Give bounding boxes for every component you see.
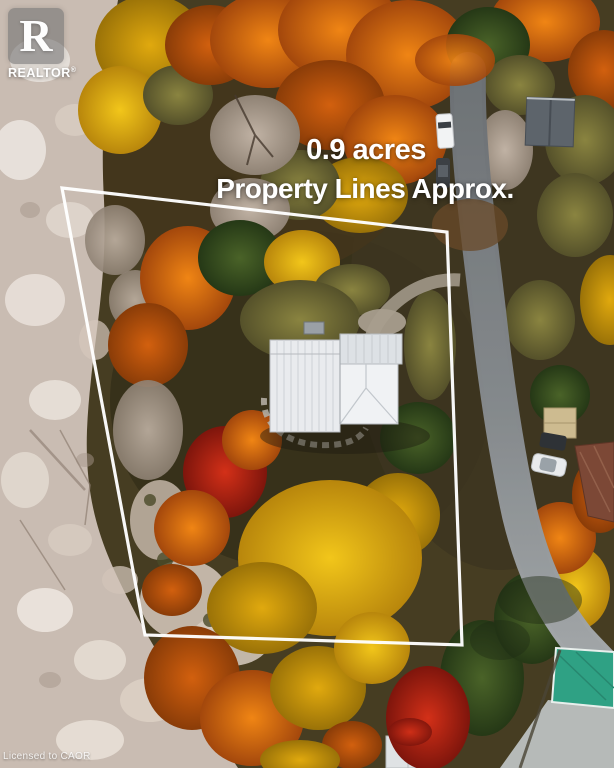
aerial-photo-canvas [0,0,614,768]
realtor-logo: R REALTOR® [8,8,78,80]
license-watermark: Licensed to CAOR [3,751,91,762]
realtor-r-glyph: R [19,13,52,59]
acreage-label: 0.9 acres [306,134,426,167]
registered-mark: ® [71,67,77,74]
aerial-photo: 0.9 acres Property Lines Approx. R REALT… [0,0,614,768]
realtor-logo-icon: R [8,8,64,64]
red-maple-tree [386,666,470,768]
property-lines-disclaimer: Property Lines Approx. [216,173,514,205]
grey-shed [525,97,575,147]
red-maple-overhang [388,718,432,746]
parked-van [436,113,454,148]
realtor-wordmark-text: REALTOR [8,66,71,80]
realtor-wordmark: REALTOR® [8,66,78,80]
